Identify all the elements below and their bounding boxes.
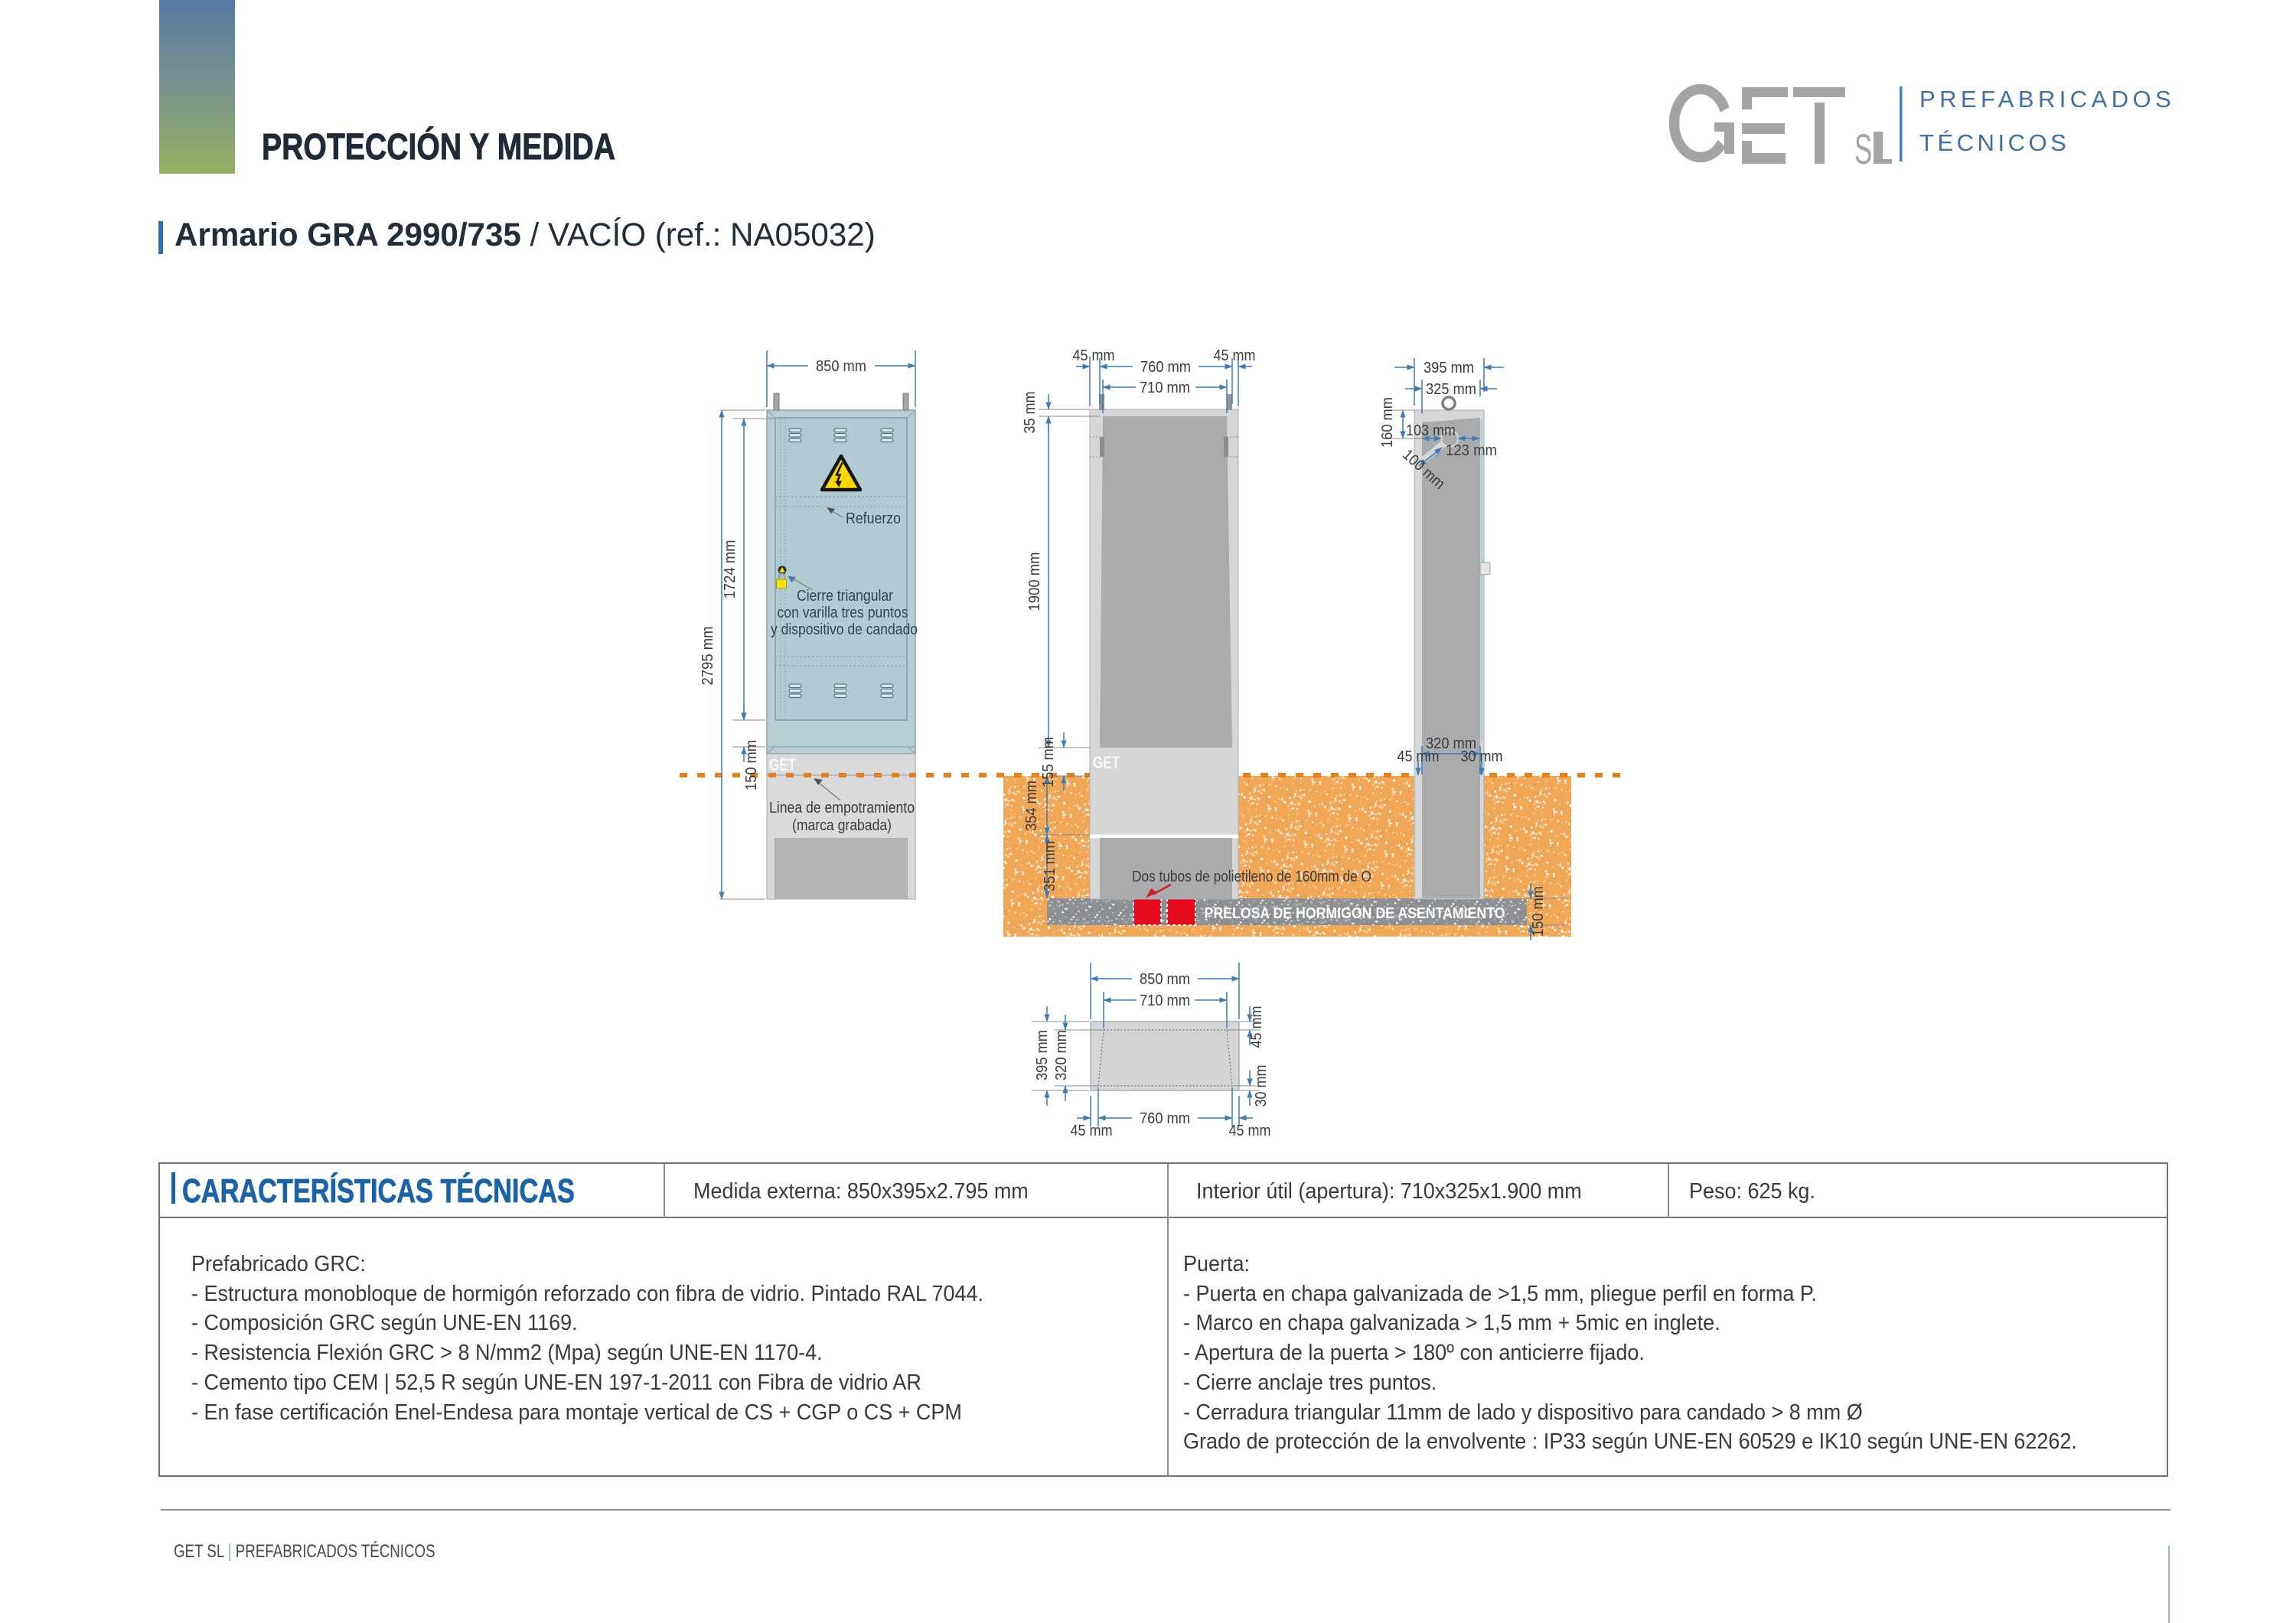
svg-text:45 mm: 45 mm: [1073, 347, 1115, 364]
svg-text:155 mm: 155 mm: [1040, 737, 1057, 787]
svg-text:1724 mm: 1724 mm: [722, 540, 739, 599]
svg-text:320 mm: 320 mm: [1053, 1030, 1070, 1080]
svg-text:con varilla tres puntos: con varilla tres puntos: [778, 605, 908, 621]
svg-text:160 mm: 160 mm: [1379, 397, 1396, 448]
svg-text:45 mm: 45 mm: [1248, 1006, 1265, 1048]
svg-text:325 mm: 325 mm: [1426, 381, 1476, 398]
svg-text:30 mm: 30 mm: [1461, 748, 1503, 765]
svg-text:760 mm: 760 mm: [1140, 1110, 1190, 1127]
svg-text:(marca grabada): (marca grabada): [792, 817, 892, 834]
svg-text:1900 mm: 1900 mm: [1026, 552, 1043, 611]
svg-text:850 mm: 850 mm: [816, 358, 866, 375]
svg-text:Cierre triangular: Cierre triangular: [797, 588, 893, 605]
svg-text:395 mm: 395 mm: [1034, 1030, 1051, 1080]
svg-text:150 mm: 150 mm: [1530, 886, 1547, 937]
svg-text:y dispositivo de candado: y dispositivo de candado: [771, 621, 918, 638]
svg-text:PRELOSA DE HORMIGÓN DE ASENTAM: PRELOSA DE HORMIGÓN DE ASENTAMIENTO: [1205, 904, 1505, 922]
svg-text:103 mm: 103 mm: [1406, 422, 1456, 439]
svg-text:710 mm: 710 mm: [1140, 380, 1190, 396]
svg-text:45 mm: 45 mm: [1071, 1123, 1113, 1139]
svg-text:395 mm: 395 mm: [1424, 360, 1474, 376]
svg-text:Refuerzo: Refuerzo: [846, 510, 901, 527]
svg-text:710 mm: 710 mm: [1140, 992, 1190, 1009]
svg-text:GET: GET: [1093, 753, 1120, 772]
svg-text:850 mm: 850 mm: [1140, 971, 1190, 988]
svg-text:GET: GET: [769, 755, 796, 774]
svg-text:760 mm: 760 mm: [1140, 359, 1191, 376]
svg-text:351 mm: 351 mm: [1042, 841, 1058, 891]
svg-text:150 mm: 150 mm: [743, 740, 760, 790]
svg-text:Dos tubos de polietileno de 16: Dos tubos de polietileno de 160mm de O: [1132, 869, 1371, 885]
svg-text:2795 mm: 2795 mm: [700, 627, 716, 686]
svg-text:35 mm: 35 mm: [1022, 392, 1039, 434]
svg-text:123 mm: 123 mm: [1446, 442, 1497, 459]
svg-text:45 mm: 45 mm: [1229, 1123, 1271, 1139]
svg-text:45 mm: 45 mm: [1397, 748, 1440, 765]
svg-text:354 mm: 354 mm: [1023, 781, 1040, 831]
svg-text:45 mm: 45 mm: [1214, 347, 1256, 364]
svg-text:Linea de empotramiento: Linea de empotramiento: [769, 800, 915, 816]
svg-text:30 mm: 30 mm: [1253, 1065, 1270, 1107]
